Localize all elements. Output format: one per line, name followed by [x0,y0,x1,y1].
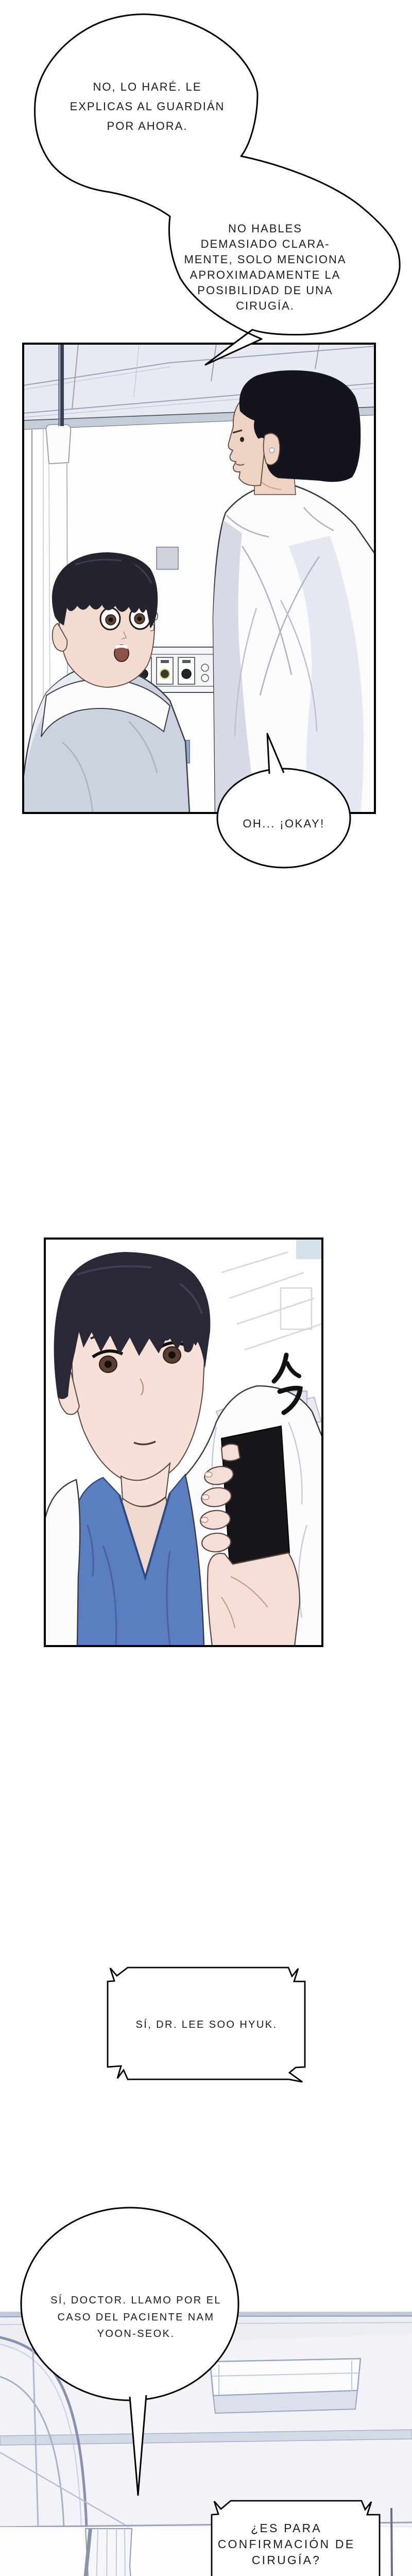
svg-text:CONFIRMACIÓN DE: CONFIRMACIÓN DE [218,2537,355,2551]
svg-text:DEMASIADO CLARA-: DEMASIADO CLARA- [201,238,330,250]
svg-text:POSIBILIDAD DE UNA: POSIBILIDAD DE UNA [197,284,333,297]
svg-text:EXPLICAS AL GUARDIÁN: EXPLICAS AL GUARDIÁN [70,100,225,113]
svg-text:SÍ, DOCTOR. LLAMO POR EL: SÍ, DOCTOR. LLAMO POR EL [50,2294,221,2306]
svg-text:APROXIMADAMENTE LA: APROXIMADAMENTE LA [190,268,341,281]
svg-text:OH... ¡OKAY!: OH... ¡OKAY! [243,817,324,830]
svg-text:MENTE, SOLO MENCIONA: MENTE, SOLO MENCIONA [184,253,346,266]
svg-text:¿ES PARA: ¿ES PARA [251,2521,322,2535]
svg-text:CIRUGÍA?: CIRUGÍA? [252,2553,321,2567]
svg-text:NO, LO HARÉ. LE: NO, LO HARÉ. LE [93,80,202,93]
svg-text:SÍ, DR. LEE SOO HYUK.: SÍ, DR. LEE SOO HYUK. [136,2019,278,2030]
svg-text:NO HABLES: NO HABLES [228,222,302,235]
svg-text:CASO DEL PACIENTE NAM: CASO DEL PACIENTE NAM [58,2312,215,2323]
svg-text:CIRUGÍA.: CIRUGÍA. [236,299,295,312]
svg-text:YOON-SEOK.: YOON-SEOK. [97,2328,175,2340]
svg-text:POR AHORA.: POR AHORA. [107,120,188,132]
